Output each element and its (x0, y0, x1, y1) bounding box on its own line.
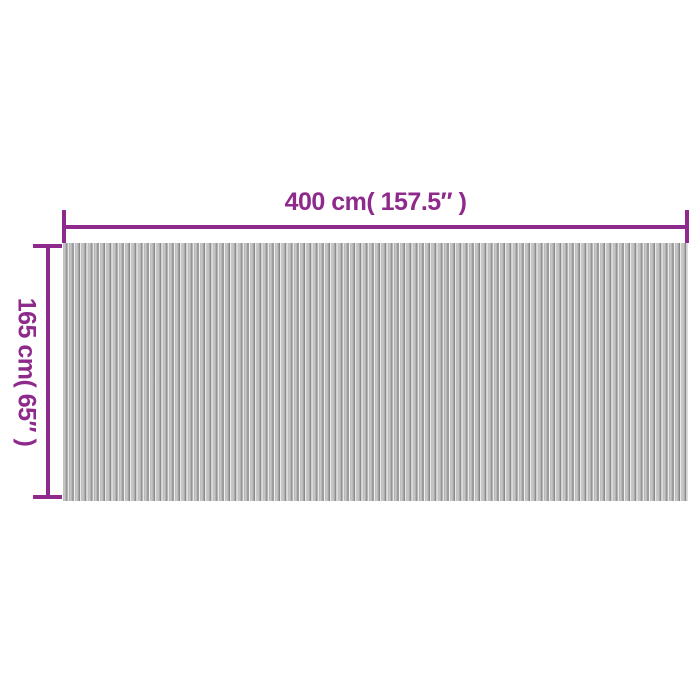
dimension-diagram: 400 cm( 157.5″ ) 165 cm( 65″ ) (0, 0, 700, 700)
height-dimension-tick-top (33, 244, 62, 248)
width-dimension-line (63, 225, 688, 229)
width-dimension-label: 400 cm( 157.5″ ) (63, 190, 688, 215)
height-dimension-line (46, 246, 50, 497)
striped-mat-illustration (63, 243, 688, 501)
height-dimension-tick-bottom (33, 495, 62, 499)
height-dimension-label: 165 cm( 65″ ) (14, 298, 39, 447)
